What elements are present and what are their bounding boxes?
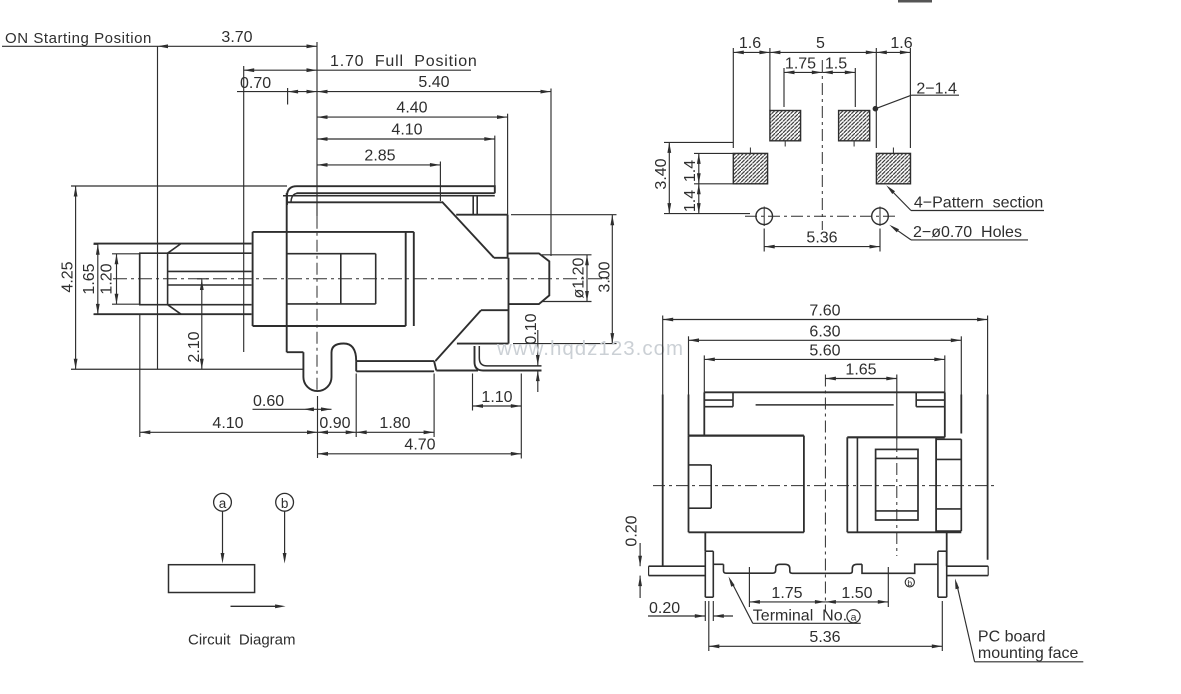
svg-text:3.70: 3.70 (221, 29, 252, 46)
svg-text:4−Pattern section: 4−Pattern section (914, 195, 1043, 212)
svg-text:1.6: 1.6 (739, 35, 761, 52)
svg-text:b: b (907, 578, 912, 588)
svg-text:a: a (219, 496, 227, 511)
svg-text:1.10: 1.10 (481, 389, 512, 406)
svg-text:2−ø0.70 Holes: 2−ø0.70 Holes (913, 224, 1022, 241)
svg-text:1.4: 1.4 (682, 190, 699, 212)
svg-text:1.80: 1.80 (379, 415, 410, 432)
svg-text:1.6: 1.6 (890, 35, 912, 52)
svg-text:1.5: 1.5 (825, 56, 847, 73)
svg-text:5.60: 5.60 (809, 342, 840, 359)
svg-text:5.40: 5.40 (418, 74, 449, 91)
svg-text:1.65: 1.65 (81, 263, 98, 294)
svg-text:0.90: 0.90 (319, 415, 350, 432)
svg-text:1.75: 1.75 (785, 56, 816, 73)
svg-text:b: b (281, 496, 289, 511)
svg-text:2.10: 2.10 (186, 331, 203, 362)
svg-text:1.75: 1.75 (771, 585, 802, 602)
svg-text:0.20: 0.20 (624, 515, 641, 546)
svg-text:4.25: 4.25 (59, 261, 76, 292)
svg-text:Terminal No.: Terminal No. (753, 608, 847, 625)
svg-text:2.85: 2.85 (364, 148, 395, 165)
svg-text:ON Starting Position: ON Starting Position (5, 30, 152, 47)
svg-text:4.40: 4.40 (396, 100, 427, 117)
svg-text:5: 5 (816, 35, 825, 52)
svg-text:mounting face: mounting face (978, 645, 1079, 662)
svg-text:3.40: 3.40 (653, 158, 670, 189)
svg-text:1.70 Full Position: 1.70 Full Position (330, 53, 478, 70)
svg-text:4.10: 4.10 (391, 122, 422, 139)
svg-text:1.4: 1.4 (682, 160, 699, 182)
svg-text:4.10: 4.10 (212, 415, 243, 432)
svg-text:0.70: 0.70 (240, 75, 271, 92)
svg-text:a: a (851, 611, 857, 623)
svg-text:3.00: 3.00 (597, 261, 614, 292)
svg-text:1.65: 1.65 (845, 362, 876, 379)
svg-text:6.30: 6.30 (809, 323, 840, 340)
svg-text:4.70: 4.70 (404, 437, 435, 454)
svg-text:1.50: 1.50 (841, 585, 872, 602)
svg-text:Circuit Diagram: Circuit Diagram (188, 632, 296, 649)
svg-text:www.hqdz123.com: www.hqdz123.com (496, 337, 684, 360)
svg-text:PC board: PC board (978, 629, 1046, 646)
svg-text:0.60: 0.60 (253, 393, 284, 410)
svg-text:5.36: 5.36 (809, 629, 840, 646)
svg-text:0.20: 0.20 (649, 600, 680, 617)
svg-text:ø1.20: ø1.20 (571, 257, 588, 298)
svg-text:7.60: 7.60 (809, 303, 840, 320)
svg-text:5.36: 5.36 (806, 230, 837, 247)
